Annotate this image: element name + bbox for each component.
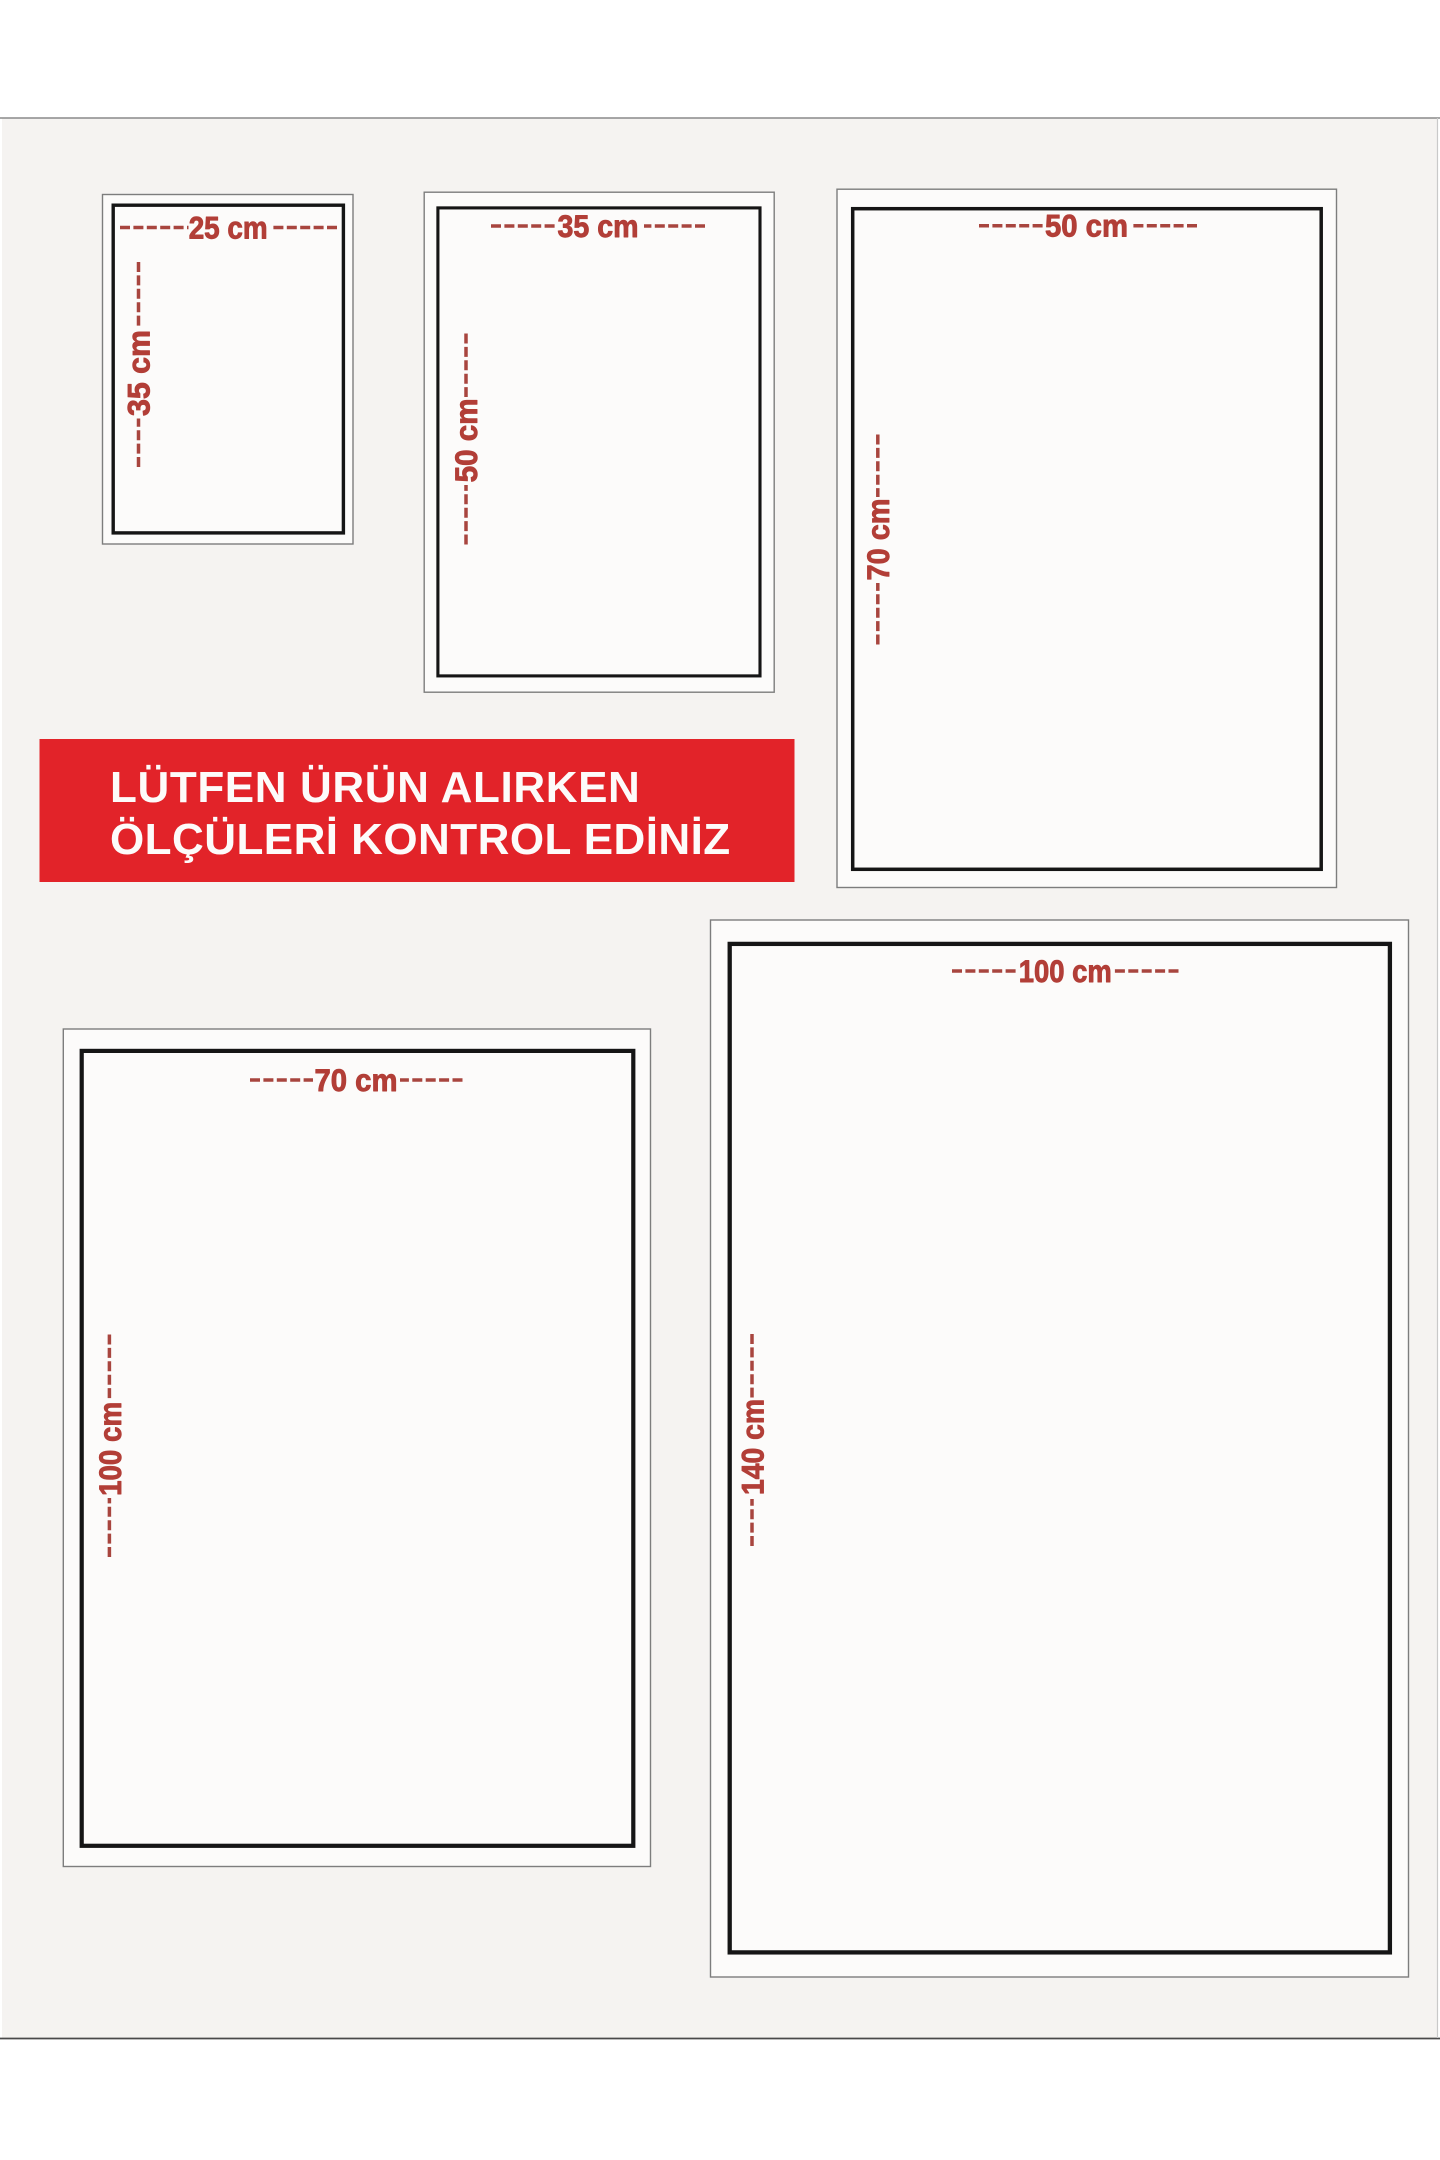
svg-text:LÜTFEN ÜRÜN ALIRKEN: LÜTFEN ÜRÜN ALIRKEN [110,763,640,812]
svg-text:25 cm: 25 cm [189,210,268,246]
svg-text:ÖLÇÜLERİ KONTROL EDİNİZ: ÖLÇÜLERİ KONTROL EDİNİZ [110,815,731,864]
svg-text:100 cm: 100 cm [1019,953,1112,989]
svg-text:50 cm: 50 cm [1045,208,1128,244]
svg-text:70 cm: 70 cm [315,1062,398,1098]
svg-text:70 cm: 70 cm [860,499,896,581]
svg-text:35 cm: 35 cm [121,330,157,416]
svg-text:140 cm: 140 cm [735,1399,771,1495]
svg-text:50 cm: 50 cm [448,398,484,482]
svg-text:100 cm: 100 cm [92,1402,128,1496]
svg-text:35 cm: 35 cm [558,208,639,244]
